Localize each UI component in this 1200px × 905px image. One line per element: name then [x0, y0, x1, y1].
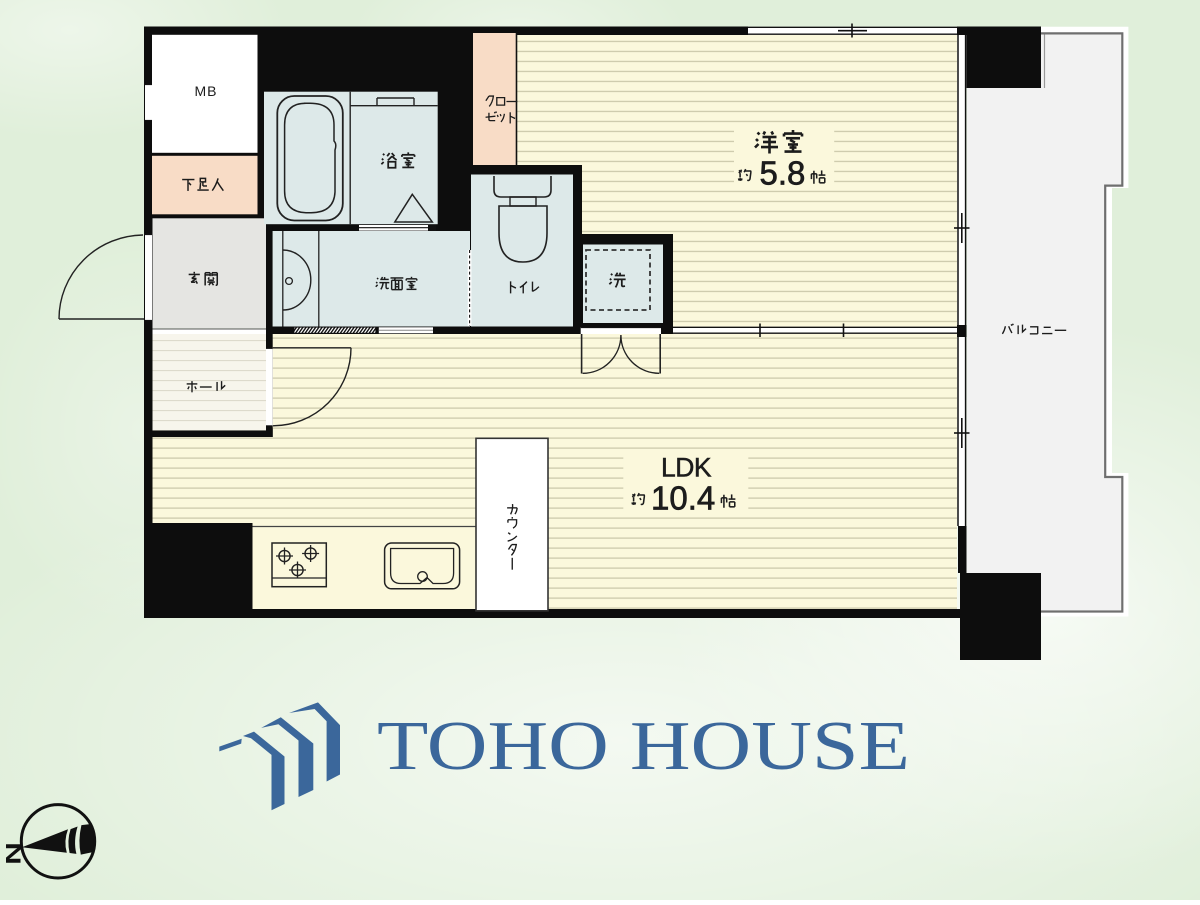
svg-text:MB: MB — [195, 83, 218, 99]
svg-text:10.4: 10.4 — [651, 480, 715, 517]
svg-text:5.8: 5.8 — [760, 155, 806, 192]
svg-text:LDK: LDK — [661, 453, 712, 483]
svg-text:N: N — [1, 842, 25, 865]
svg-text:TOHO HOUSE: TOHO HOUSE — [377, 708, 910, 785]
